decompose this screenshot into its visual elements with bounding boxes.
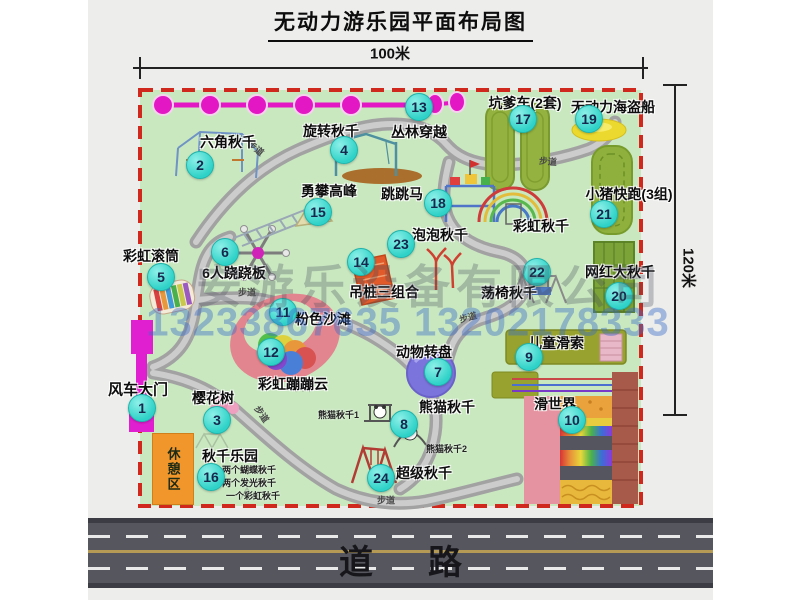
- marker-15: 15: [304, 198, 332, 226]
- rest-area: 休憩区: [152, 433, 194, 505]
- marker-18: 18: [424, 189, 452, 217]
- marker-4: 4: [330, 136, 358, 164]
- dimension-line-top: [133, 67, 648, 69]
- page-title-text: 无动力游乐园平面布局图: [268, 6, 533, 42]
- marker-16: 16: [197, 463, 225, 491]
- marker-24: 24: [367, 464, 395, 492]
- marker-10: 10: [558, 406, 586, 434]
- attraction-label-cherry-tree: 樱花树: [192, 388, 234, 408]
- dimension-tick: [139, 57, 141, 79]
- attraction-label-rainbow-swing: 彩虹秋千: [513, 216, 569, 236]
- marker-5: 5: [147, 263, 175, 291]
- note-panda-swing-2: 熊猫秋千2: [426, 442, 467, 455]
- dimension-tick: [663, 414, 687, 416]
- marker-8: 8: [390, 410, 418, 438]
- marker-3: 3: [203, 406, 231, 434]
- walkway-label: 步道: [538, 154, 557, 169]
- attraction-label-hexagon-swing: 六角秋千: [200, 132, 256, 152]
- playground-layout-map: 无动力游乐园平面布局图 100米 120米: [0, 0, 800, 600]
- marker-21: 21: [590, 200, 618, 228]
- attraction-label-climbing-ridge: 勇攀高峰: [301, 181, 357, 201]
- road-label: 道路: [88, 535, 713, 584]
- dimension-tick: [663, 84, 687, 86]
- note-panda-swing-1: 熊猫秋千1: [318, 408, 359, 421]
- marker-13: 13: [405, 93, 433, 121]
- marker-19: 19: [575, 105, 603, 133]
- note-swing-park-1: 两个蝴蝶秋千: [222, 463, 276, 476]
- dimension-label-height: 120米: [679, 248, 700, 288]
- marker-9: 9: [515, 343, 543, 371]
- attraction-label-jungle-crossing: 丛林穿越: [391, 122, 447, 142]
- dimension-label-width: 100米: [370, 43, 410, 64]
- walkway-label: 步道: [377, 494, 395, 507]
- road: 道路: [88, 518, 713, 588]
- marker-17: 17: [509, 105, 537, 133]
- dimension-line-right: [674, 84, 676, 416]
- attraction-label-bubble-swing: 泡泡秋千: [412, 225, 468, 245]
- note-swing-park-2: 两个发光秋千: [222, 476, 276, 489]
- attraction-label-panda-swing: 熊猫秋千: [419, 397, 475, 417]
- dimension-tick: [642, 57, 644, 79]
- rest-area-label: 休憩区: [164, 447, 183, 492]
- marker-1: 1: [128, 394, 156, 422]
- watermark-phone: 13233867635 13202178333: [146, 301, 670, 346]
- attraction-label-super-swing: 超级秋千: [396, 463, 452, 483]
- marker-2: 2: [186, 151, 214, 179]
- note-swing-park-3: 一个彩虹秋千: [226, 489, 280, 502]
- attraction-label-rainbow-roller: 彩虹滚筒: [123, 246, 179, 266]
- page-title: 无动力游乐园平面布局图: [88, 6, 713, 42]
- attraction-label-jumping-horse: 跳跳马: [381, 184, 423, 204]
- marker-7: 7: [424, 358, 452, 386]
- attraction-label-rainbow-cloud: 彩虹蹦蹦云: [258, 374, 328, 394]
